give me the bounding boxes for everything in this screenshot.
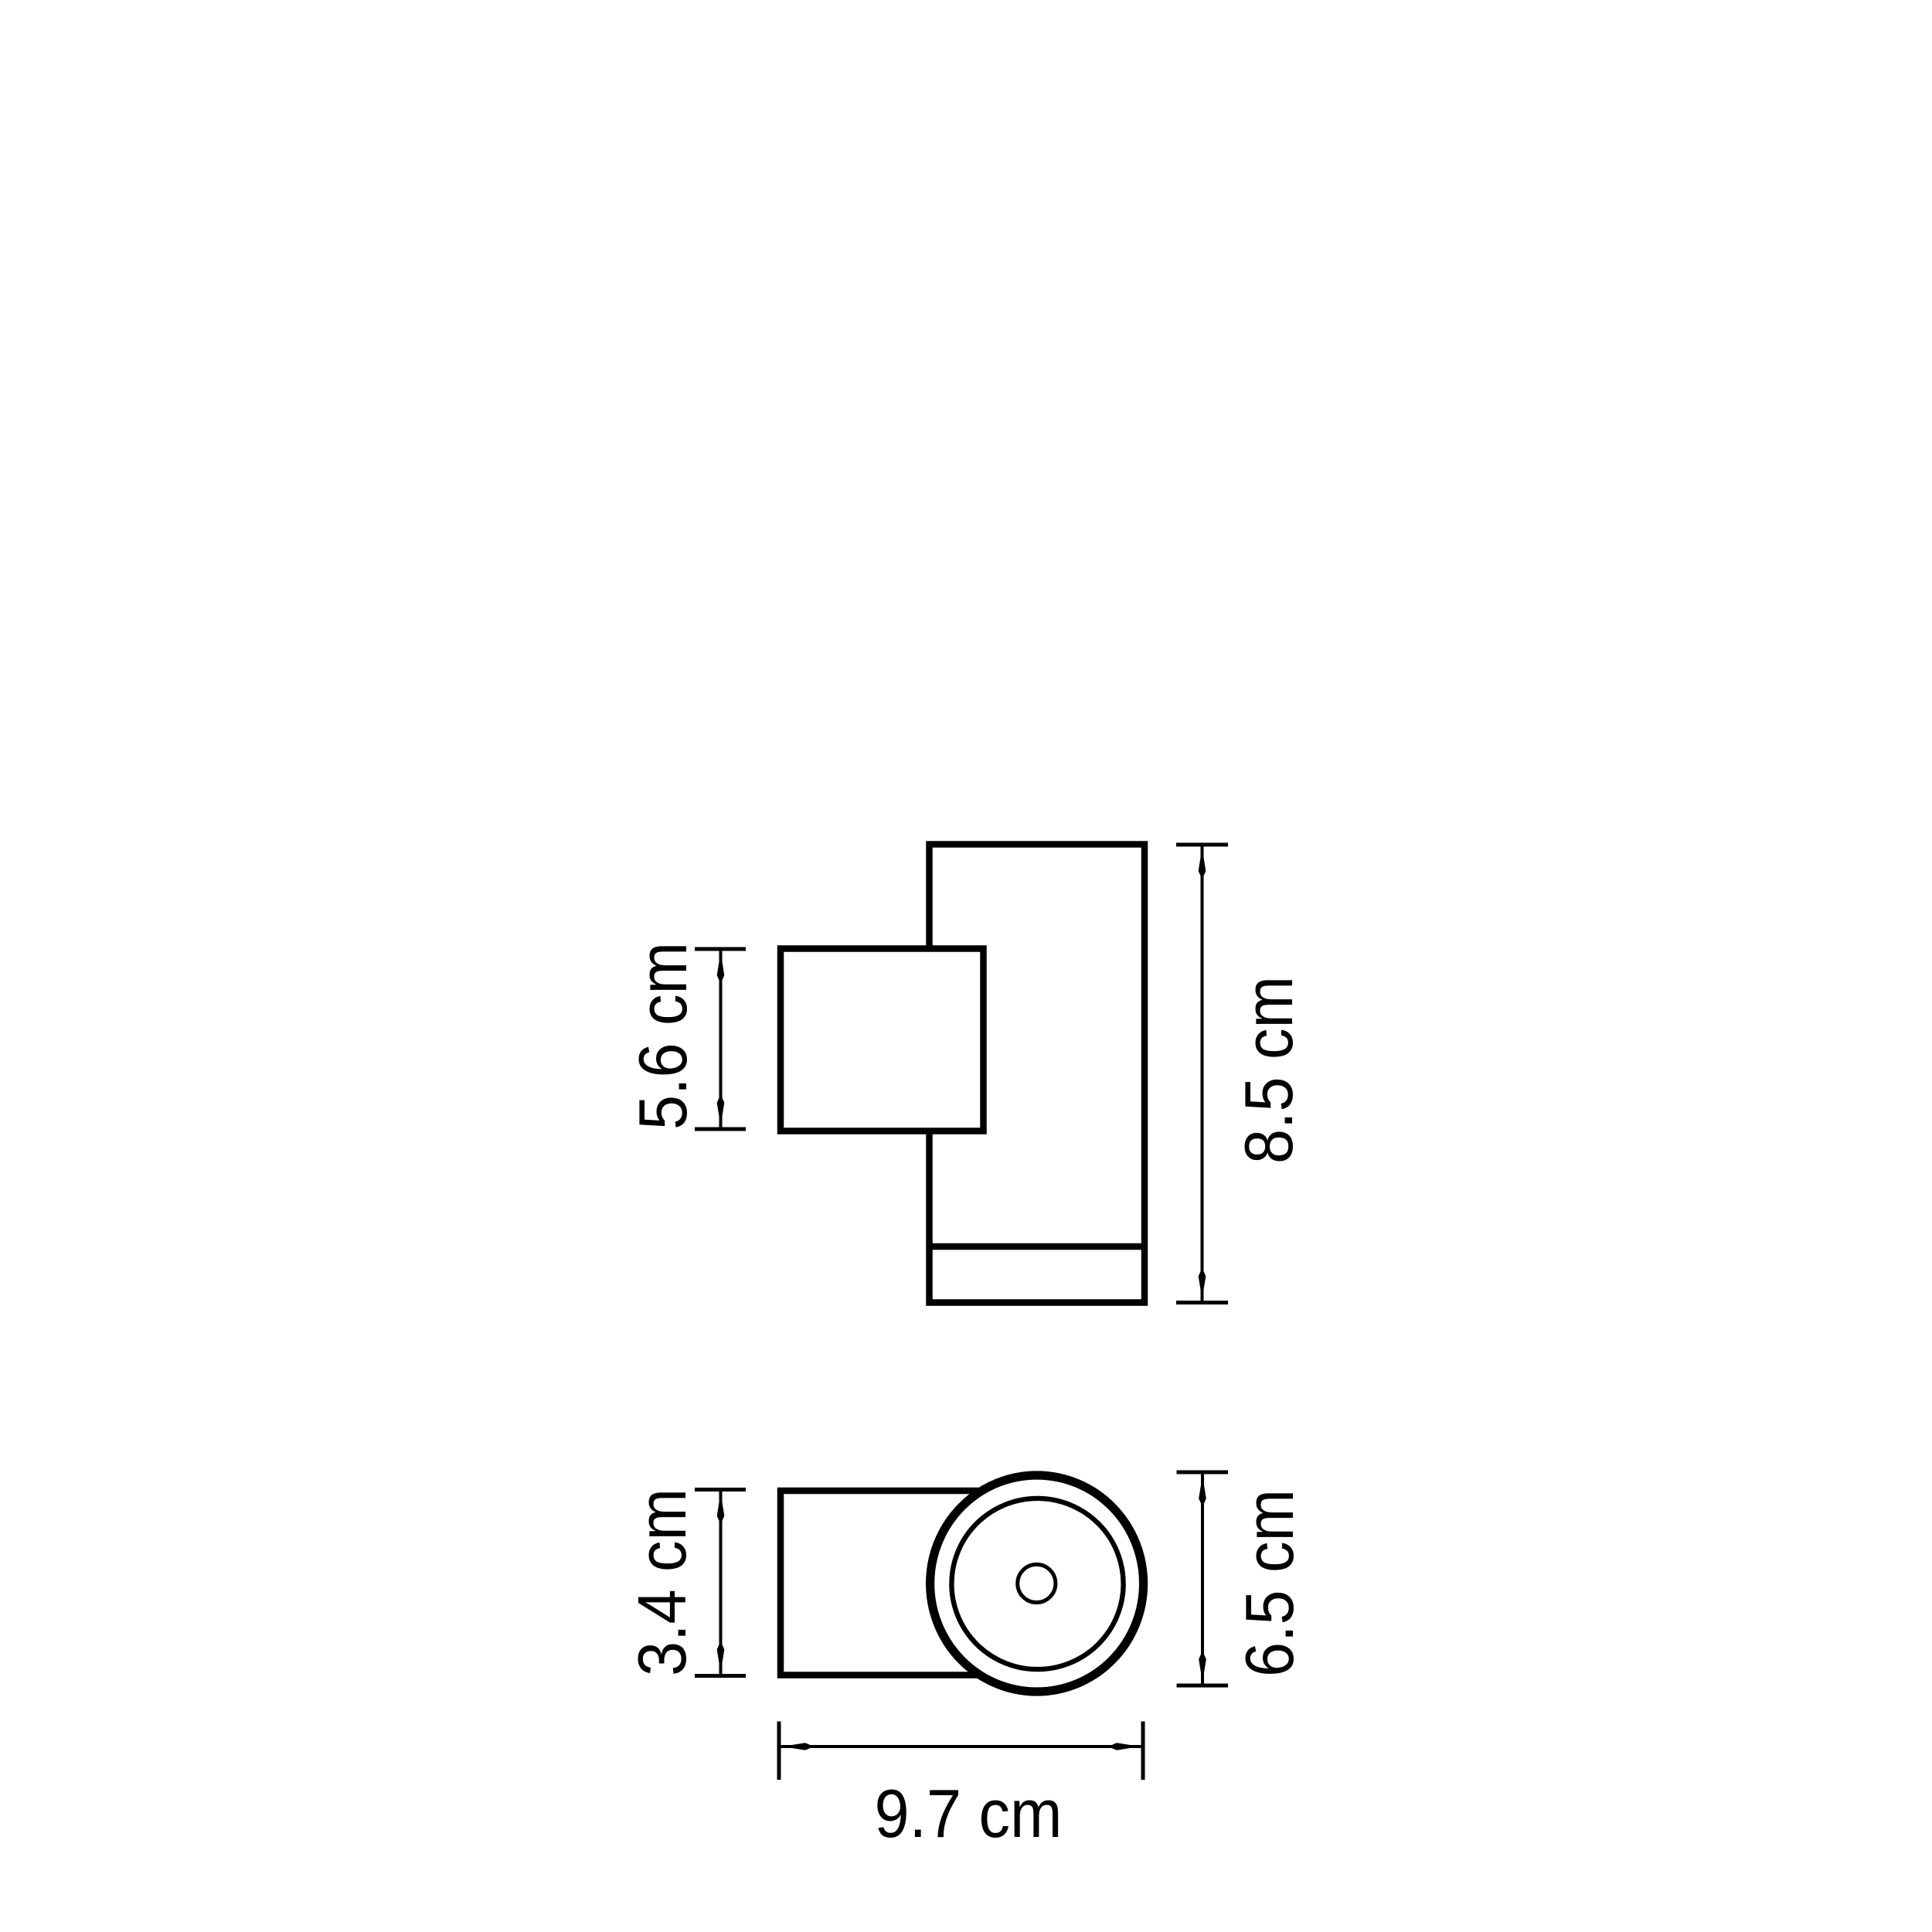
svg-text:5.6 cm: 5.6 cm xyxy=(624,942,701,1130)
svg-text:6.5 cm: 6.5 cm xyxy=(1231,1489,1308,1677)
svg-text:9.7 cm: 9.7 cm xyxy=(875,1775,1063,1852)
svg-text:3.4 cm: 3.4 cm xyxy=(624,1488,700,1676)
svg-text:8.5 cm: 8.5 cm xyxy=(1230,976,1307,1164)
